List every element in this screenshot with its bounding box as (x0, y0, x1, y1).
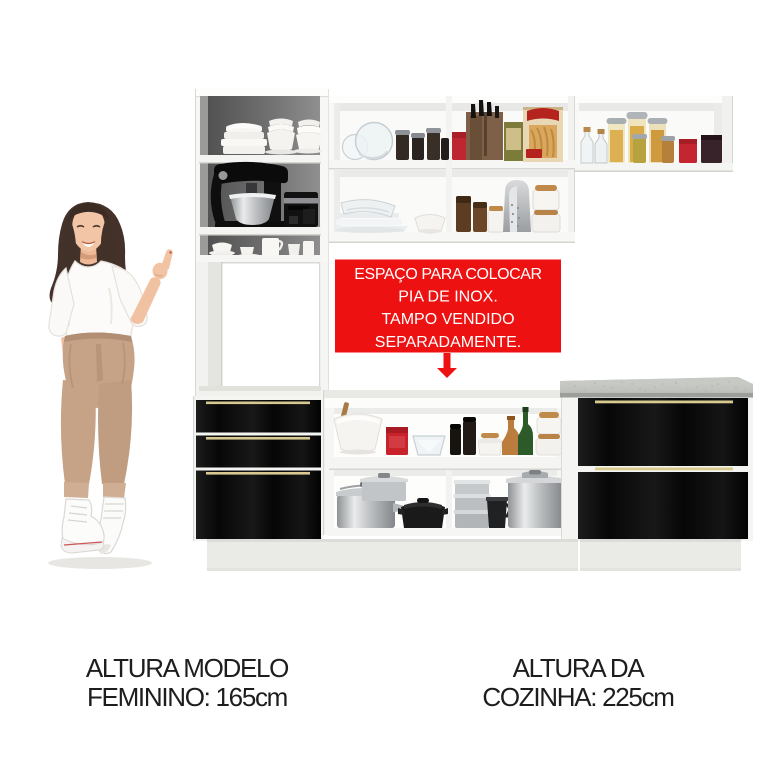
svg-text:ESPAÇO PARA COLOCAR: ESPAÇO PARA COLOCAR (354, 266, 541, 283)
svg-text:PIA DE INOX.: PIA DE INOX. (398, 289, 498, 306)
svg-text:ALTURA MODELO: ALTURA MODELO (86, 653, 288, 683)
svg-text:ALTURA DA: ALTURA DA (513, 653, 646, 683)
svg-text:TAMPO VENDIDO: TAMPO VENDIDO (381, 311, 514, 328)
svg-text:SEPARADAMENTE.: SEPARADAMENTE. (375, 334, 521, 351)
svg-text:FEMININO: 165cm: FEMININO: 165cm (87, 682, 287, 712)
svg-text:COZINHA: 225cm: COZINHA: 225cm (482, 682, 673, 712)
